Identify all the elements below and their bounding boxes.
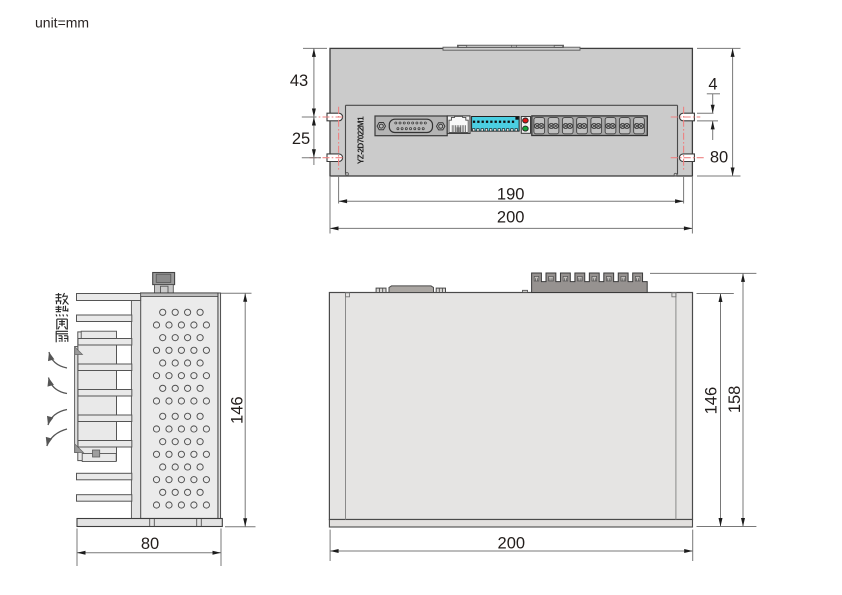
svg-text:43: 43 <box>290 72 308 90</box>
svg-text:80: 80 <box>710 149 728 167</box>
svg-text:190: 190 <box>497 185 525 203</box>
svg-text:146: 146 <box>228 396 246 424</box>
svg-text:YZ-2D7022M1: YZ-2D7022M1 <box>357 116 366 164</box>
svg-text:4: 4 <box>708 76 717 94</box>
svg-text:158: 158 <box>726 386 744 414</box>
svg-text:200: 200 <box>498 534 526 552</box>
svg-text:25: 25 <box>292 130 310 148</box>
svg-text:unit=mm: unit=mm <box>35 15 89 31</box>
svg-text:146: 146 <box>703 387 721 415</box>
svg-text:200: 200 <box>497 209 525 227</box>
svg-text:80: 80 <box>141 535 159 553</box>
